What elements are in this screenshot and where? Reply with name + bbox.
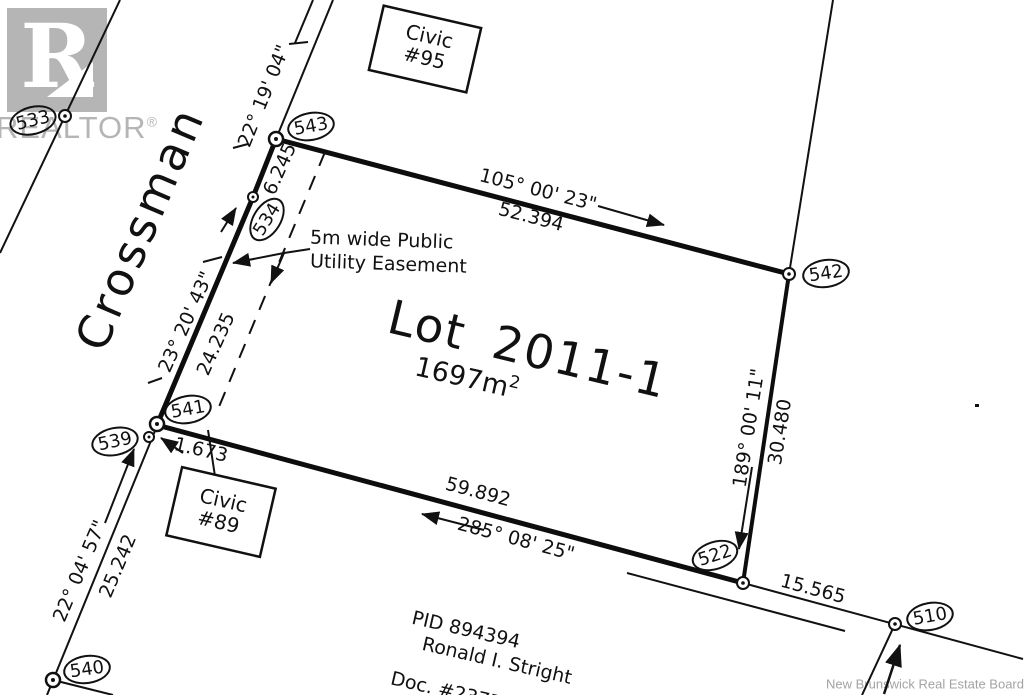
street-east-edge-lower-line xyxy=(47,426,157,695)
marker-542 xyxy=(783,268,795,280)
marker-541 xyxy=(150,417,164,431)
marker-522 xyxy=(737,577,749,589)
road-direction-arrow-upper xyxy=(221,208,236,232)
marker-533 xyxy=(59,110,71,122)
easement-width-arrow-west xyxy=(233,253,284,263)
easement-leader-line xyxy=(284,249,310,253)
north-bearing-arrow xyxy=(598,206,664,225)
easement-width-arrow-east xyxy=(271,253,284,283)
marker-540 xyxy=(46,673,60,687)
marker-534 xyxy=(248,192,258,202)
bearing-tick-23-bottom xyxy=(148,378,162,383)
survey-plan: R REALTOR® New Brunswick Real Estate Boa… xyxy=(0,0,1024,695)
side-boundary-line xyxy=(862,624,895,695)
marker-510 xyxy=(889,618,901,630)
civic-89-label: Civic #89 xyxy=(193,484,250,538)
bearing-tick-23-top xyxy=(203,257,222,262)
bearing-leader-tick xyxy=(289,42,308,44)
point-510-arrow xyxy=(884,645,900,694)
civic-95-label: Civic #95 xyxy=(399,20,456,74)
realtor-logo-triangle xyxy=(47,62,93,97)
stray-mark xyxy=(975,404,979,407)
marker-539 xyxy=(144,432,154,442)
road-direction-arrow-lower xyxy=(105,449,134,523)
bearing-leader-line xyxy=(295,0,313,43)
neighbor-boundary-line xyxy=(789,0,833,274)
